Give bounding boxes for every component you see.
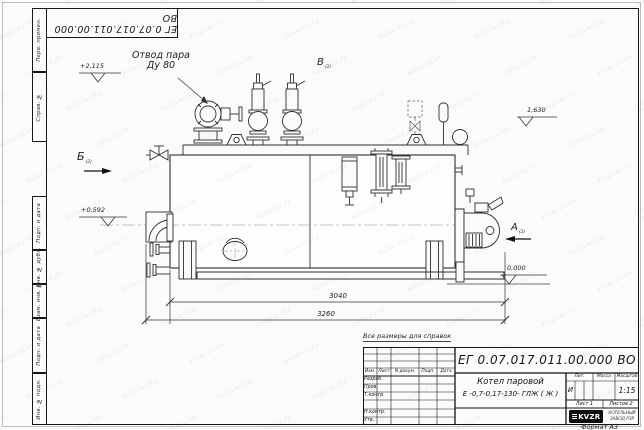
lifting-lug-right xyxy=(407,135,426,146)
section-arrow-b xyxy=(84,168,112,174)
steam-outlet-leader xyxy=(178,78,208,104)
steam-outlet-label-line2: Ду 80 xyxy=(122,61,200,71)
right-face-nozzle xyxy=(455,165,462,175)
left-elbow-pipe xyxy=(146,212,173,242)
drawing-sheet: ЕГ 0.07.017.011.00.000 ВО Перв. примен. … xyxy=(0,0,644,430)
siphon-loop-pipe xyxy=(453,130,468,145)
lifting-lug-left xyxy=(227,135,246,146)
support-leg-right xyxy=(426,241,443,279)
left-nozzle-lower xyxy=(147,263,170,277)
safety-valve-2 xyxy=(281,74,305,145)
section-arrow-a xyxy=(505,236,531,242)
elevation-label-2115: +2,115 xyxy=(80,63,104,70)
safety-valve-1 xyxy=(247,74,271,145)
support-leg-left xyxy=(179,241,196,279)
elevation-label-0592: +0,592 xyxy=(81,207,105,214)
elevation-label-0000: 0,000 xyxy=(507,265,526,272)
dimension-3040: 3040 xyxy=(300,293,376,300)
steam-outlet-label: Отвод пара Ду 80 xyxy=(122,51,200,71)
left-nozzle-upper xyxy=(150,243,170,256)
shell-top-left-valve xyxy=(146,146,168,160)
view-label-b: Б(2) xyxy=(77,151,92,166)
pressure-sensor xyxy=(439,103,448,145)
burner-assembly xyxy=(455,189,503,282)
instrument-dashed-box xyxy=(408,101,422,135)
dimension-3260: 3260 xyxy=(288,311,364,318)
reference-note: Все размеры для справок xyxy=(363,333,451,342)
title-block-grid xyxy=(363,347,639,425)
view-label-v: В(2) xyxy=(317,58,331,71)
elevation-label-1630: 1,630 xyxy=(527,107,546,114)
top-platform xyxy=(183,145,468,155)
view-label-a: А(2) xyxy=(511,223,525,236)
format-label: Формат А3 xyxy=(560,424,639,430)
boiler-shell xyxy=(170,155,455,268)
